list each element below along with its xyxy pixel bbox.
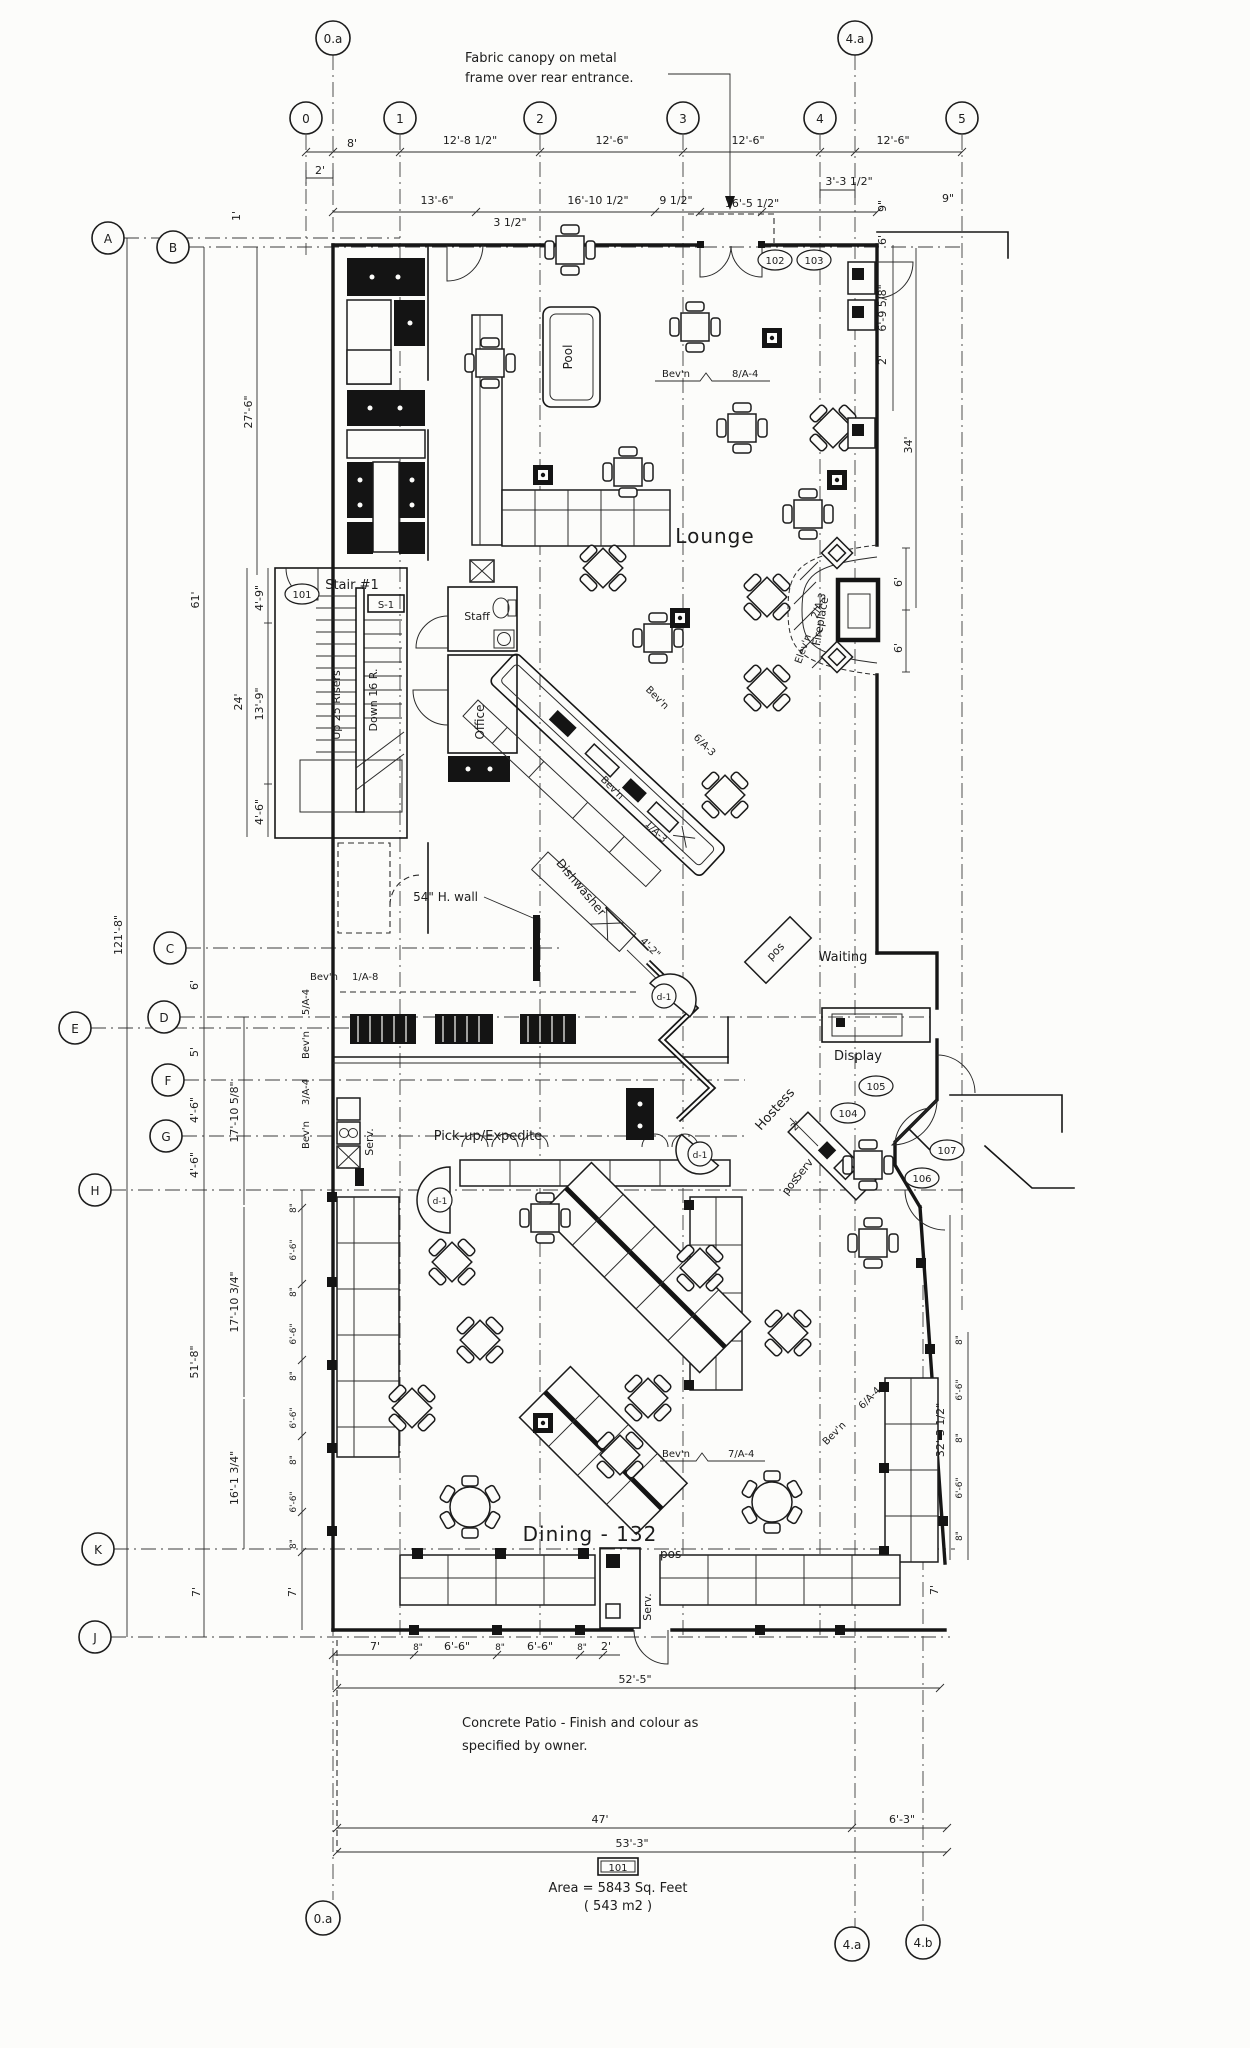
svg-text:105: 105 bbox=[866, 1082, 885, 1093]
floor-plan-sheet: Fabric canopy on metal frame over rear e… bbox=[0, 0, 1250, 2048]
callout-bev-d4-ref: 7/A-4 bbox=[728, 1449, 754, 1460]
dim: 8" bbox=[495, 1643, 505, 1653]
grid-bubble-A: A bbox=[92, 222, 124, 254]
floor-plan-svg: Fabric canopy on metal frame over rear e… bbox=[0, 0, 1250, 2048]
dim: 6'-6" bbox=[955, 1477, 965, 1498]
svg-text:0.a: 0.a bbox=[314, 1912, 333, 1926]
svg-text:4.b: 4.b bbox=[913, 1936, 932, 1950]
dim: 6'-6" bbox=[289, 1407, 299, 1428]
grid-bubble-4b-bottom: 4.b bbox=[906, 1925, 940, 1959]
svg-text:A: A bbox=[104, 232, 113, 246]
svg-text:104: 104 bbox=[838, 1109, 857, 1120]
svg-text:G: G bbox=[161, 1130, 170, 1144]
dim: 6'-6" bbox=[527, 1640, 553, 1653]
dim: 4'-2" bbox=[638, 936, 663, 961]
grid-bubble-C: C bbox=[154, 932, 186, 964]
lounge-furniture bbox=[465, 225, 875, 830]
svg-text:1: 1 bbox=[396, 112, 404, 126]
serv-kitchen-label: Serv. bbox=[363, 1128, 376, 1155]
grid-bubble-4: 4 bbox=[804, 102, 836, 134]
dim: 4'-6" bbox=[253, 799, 266, 825]
door-tag-d1a: d-1 bbox=[652, 984, 676, 1008]
svg-text:d-1: d-1 bbox=[433, 1197, 448, 1207]
stair-down-label: Down 16 R. bbox=[367, 669, 380, 732]
dim: 8" bbox=[289, 1371, 299, 1381]
serv-dining-label: Serv. bbox=[641, 1593, 654, 1620]
svg-text:103: 103 bbox=[804, 256, 823, 267]
grid-bubble-0: 0 bbox=[290, 102, 322, 134]
dim: 8" bbox=[289, 1203, 299, 1213]
door-tag-106: 106 bbox=[905, 1168, 939, 1188]
grid-bubble-K: K bbox=[82, 1533, 114, 1565]
room-label-pickup: Pick-up/Expedite bbox=[434, 1129, 543, 1144]
dim: 9" bbox=[876, 200, 889, 212]
grid-bubble-0a-top: 0.a bbox=[316, 21, 350, 55]
door-tag-101: 101 bbox=[285, 584, 319, 604]
dim: 3'-3 1/2" bbox=[825, 175, 872, 188]
dim: 12'-6" bbox=[731, 134, 764, 147]
dim: 8' bbox=[347, 137, 357, 150]
dim: 13'-9" bbox=[253, 687, 266, 720]
dim: 8" bbox=[289, 1455, 299, 1465]
grid-bubble-F: F bbox=[152, 1064, 184, 1096]
svg-text:101: 101 bbox=[608, 1863, 627, 1874]
dim: 4'-9" bbox=[253, 585, 266, 611]
grid-bubble-5: 5 bbox=[946, 102, 978, 134]
grid-bubble-H: H bbox=[79, 1174, 111, 1206]
callout-bev-d2-ref: 5/A-4 bbox=[301, 989, 312, 1015]
dim: 6'-9 5/8" bbox=[876, 284, 889, 331]
grid-bubble-2: 2 bbox=[524, 102, 556, 134]
callout-bev-d2: Bev'n bbox=[301, 1031, 312, 1059]
grid-bubble-1: 1 bbox=[384, 102, 416, 134]
callout-bev-d3-ref: 3/A-4 bbox=[301, 1079, 312, 1105]
svg-text:107: 107 bbox=[937, 1146, 956, 1157]
dim: 2' bbox=[601, 1640, 611, 1653]
svg-text:102: 102 bbox=[765, 256, 784, 267]
dim: 47' bbox=[591, 1813, 608, 1826]
dim: 7' bbox=[928, 1585, 941, 1595]
door-tag-103: 103 bbox=[797, 250, 831, 270]
dim: 8" bbox=[955, 1335, 965, 1345]
door-tag-102: 102 bbox=[758, 250, 792, 270]
callout-bev-bar1-ref: 6/A-3 bbox=[691, 732, 717, 758]
svg-text:C: C bbox=[166, 942, 174, 956]
room-label-stair: Stair #1 bbox=[325, 578, 379, 593]
dim: 6'-6" bbox=[444, 1640, 470, 1653]
svg-text:106: 106 bbox=[912, 1174, 931, 1185]
svg-text:2: 2 bbox=[536, 112, 544, 126]
dim: 32'-3 1/2" bbox=[934, 1403, 947, 1457]
room-label-dishwasher: Dishwasher bbox=[553, 856, 609, 918]
dim: 8" bbox=[289, 1539, 299, 1549]
svg-text:D: D bbox=[159, 1011, 168, 1025]
dim: 34' bbox=[902, 436, 915, 453]
dim: 8" bbox=[289, 1287, 299, 1297]
grid-bubble-B: B bbox=[157, 231, 189, 263]
callout-bev-d4: Bev'n bbox=[662, 1449, 690, 1460]
dim: 2' bbox=[876, 355, 889, 365]
dim: 5' bbox=[188, 1047, 201, 1057]
dim: 7' bbox=[370, 1640, 380, 1653]
kitchen-equipment bbox=[347, 245, 428, 560]
note-canopy-line1: Fabric canopy on metal bbox=[465, 51, 617, 66]
dim: 51'-8" bbox=[188, 1345, 201, 1378]
note-patio-line2: specified by owner. bbox=[462, 1739, 588, 1754]
dim: 27'-6" bbox=[242, 395, 255, 428]
dim: 7' bbox=[190, 1587, 203, 1597]
stair-tag-s1: S-1 bbox=[368, 595, 404, 612]
bar bbox=[463, 652, 727, 981]
dim: 6' bbox=[892, 643, 905, 653]
room-label-pool: Pool bbox=[561, 345, 575, 370]
door-tag-d1c: d-1 bbox=[428, 1188, 452, 1212]
dim: 12'-8 1/2" bbox=[443, 134, 497, 147]
svg-text:K: K bbox=[94, 1543, 103, 1557]
callout-bev-d5-ref: 6/A-4 bbox=[857, 1385, 883, 1411]
callout-bev-d1-ref: 1/A-8 bbox=[352, 972, 378, 983]
door-tag-107: 107 bbox=[930, 1140, 964, 1160]
door-tag-104: 104 bbox=[831, 1103, 865, 1123]
svg-text:4.a: 4.a bbox=[843, 1938, 862, 1952]
dim: 52'-5" bbox=[618, 1673, 651, 1686]
door-tag-105: 105 bbox=[859, 1076, 893, 1096]
grid-bubble-J: J bbox=[79, 1621, 111, 1653]
svg-text:4.a: 4.a bbox=[846, 32, 865, 46]
grid-bubble-4a-bottom: 4.a bbox=[835, 1927, 869, 1961]
dim: 61' bbox=[189, 591, 202, 608]
pos-dining-label: pos bbox=[660, 1547, 681, 1561]
canopy-leader bbox=[668, 74, 735, 210]
dim: 6'-6" bbox=[289, 1239, 299, 1260]
grid-bubble-G: G bbox=[150, 1120, 182, 1152]
room-label-dining: Dining - 132 bbox=[523, 1522, 658, 1546]
callout-elev-fp: Elev'n bbox=[793, 633, 814, 665]
callout-bev-lounge: Bev'n bbox=[662, 369, 690, 380]
dim: 121'-8" bbox=[112, 915, 125, 955]
svg-text:E: E bbox=[71, 1022, 79, 1036]
dim: 6'-6" bbox=[289, 1323, 299, 1344]
dim: 1' bbox=[230, 211, 243, 221]
note-area-line2: ( 543 m2 ) bbox=[584, 1899, 652, 1914]
grid-bubble-4a-top: 4.a bbox=[838, 21, 872, 55]
callout-bev-bar2: Bev'n bbox=[598, 774, 626, 802]
callout-bev-bar1: Bev'n bbox=[643, 684, 671, 712]
svg-text:d-1: d-1 bbox=[657, 993, 672, 1003]
note-area-line1: Area = 5843 Sq. Feet bbox=[549, 1881, 688, 1896]
room-label-waiting: Waiting bbox=[819, 950, 868, 965]
dim: 8" bbox=[413, 1643, 423, 1653]
svg-text:B: B bbox=[169, 241, 177, 255]
dim: 12'-6" bbox=[595, 134, 628, 147]
dim: 8" bbox=[955, 1433, 965, 1443]
dim: 4'-6" bbox=[188, 1097, 201, 1123]
dim: 3 1/2" bbox=[493, 216, 526, 229]
callout-bev-d5: Bev'n bbox=[821, 1420, 849, 1448]
dim: 16'-10 1/2" bbox=[567, 194, 628, 207]
svg-text:F: F bbox=[165, 1074, 172, 1088]
dim: 6' bbox=[876, 235, 889, 245]
grid-bubble-E: E bbox=[59, 1012, 91, 1044]
dim: 6' bbox=[188, 980, 201, 990]
dim: 9" bbox=[942, 192, 954, 205]
note-patio-line1: Concrete Patio - Finish and colour as bbox=[462, 1716, 699, 1731]
note-canopy-line2: frame over rear entrance. bbox=[465, 71, 633, 86]
dim: 13'-6" bbox=[420, 194, 453, 207]
grid-bubble-0a-bottom: 0.a bbox=[306, 1901, 340, 1935]
svg-text:5: 5 bbox=[958, 112, 966, 126]
svg-text:d-1: d-1 bbox=[693, 1151, 708, 1161]
dim: 17'-10 5/8" bbox=[228, 1081, 241, 1142]
callout-bev-d3: Bev'n bbox=[301, 1121, 312, 1149]
dim: 6'-6" bbox=[955, 1379, 965, 1400]
dim: 6'-3" bbox=[889, 1813, 915, 1826]
dim: 7' bbox=[286, 1587, 299, 1597]
room-tag-101: 101 bbox=[598, 1858, 638, 1875]
dim: 9 1/2" bbox=[659, 194, 692, 207]
dim: 53'-3" bbox=[615, 1837, 648, 1850]
dim: 24' bbox=[232, 693, 245, 710]
dim: 6' bbox=[892, 577, 905, 587]
dim: 8" bbox=[577, 1643, 587, 1653]
callout-bev-lounge-ref: 8/A-4 bbox=[732, 369, 758, 380]
grid-bubble-D: D bbox=[148, 1001, 180, 1033]
svg-text:3: 3 bbox=[679, 112, 687, 126]
dim: 6'-6" bbox=[289, 1491, 299, 1512]
svg-text:S-1: S-1 bbox=[378, 600, 394, 611]
svg-text:4: 4 bbox=[816, 112, 824, 126]
room-label-lounge: Lounge bbox=[675, 524, 754, 548]
grid-bubble-3: 3 bbox=[667, 102, 699, 134]
svg-text:0.a: 0.a bbox=[324, 32, 343, 46]
svg-text:J: J bbox=[92, 1631, 97, 1645]
svg-text:101: 101 bbox=[292, 590, 311, 601]
svg-text:H: H bbox=[90, 1184, 99, 1198]
callout-bev-d1: Bev'n bbox=[310, 972, 338, 983]
dim: 12'-6" bbox=[876, 134, 909, 147]
room-label-office: Office bbox=[473, 704, 487, 739]
room-label-staff: Staff bbox=[464, 610, 490, 623]
dim: 16'-1 3/4" bbox=[228, 1451, 241, 1505]
dim: 2' bbox=[315, 164, 325, 177]
note-54-wall: 54" H. wall bbox=[413, 890, 478, 904]
stair-up-label: Up 25 Risers bbox=[330, 670, 343, 740]
dim: 4'-6" bbox=[188, 1152, 201, 1178]
svg-text:0: 0 bbox=[302, 112, 310, 126]
dim: 16'-5 1/2" bbox=[725, 197, 779, 210]
dim: 8" bbox=[955, 1531, 965, 1541]
dim: 17'-10 3/4" bbox=[228, 1271, 241, 1332]
door-tag-d1b: d-1 bbox=[688, 1142, 712, 1166]
room-label-display: Display bbox=[834, 1049, 882, 1064]
